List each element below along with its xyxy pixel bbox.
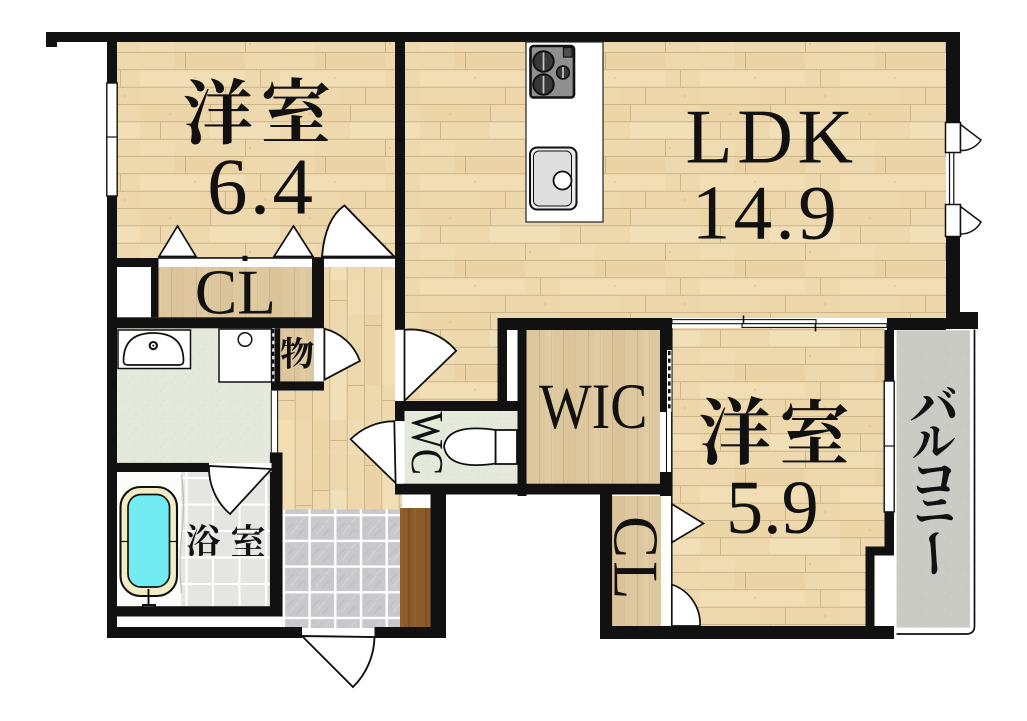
svg-text:CL: CL	[601, 516, 671, 603]
svg-text:14.9: 14.9	[692, 169, 837, 255]
svg-text:6.4: 6.4	[207, 142, 313, 232]
svg-text:CL: CL	[195, 257, 276, 328]
svg-text:WC: WC	[402, 412, 453, 476]
svg-text:5.9: 5.9	[726, 466, 819, 550]
svg-text:LDK: LDK	[686, 93, 854, 179]
svg-text:WIC: WIC	[539, 371, 647, 443]
